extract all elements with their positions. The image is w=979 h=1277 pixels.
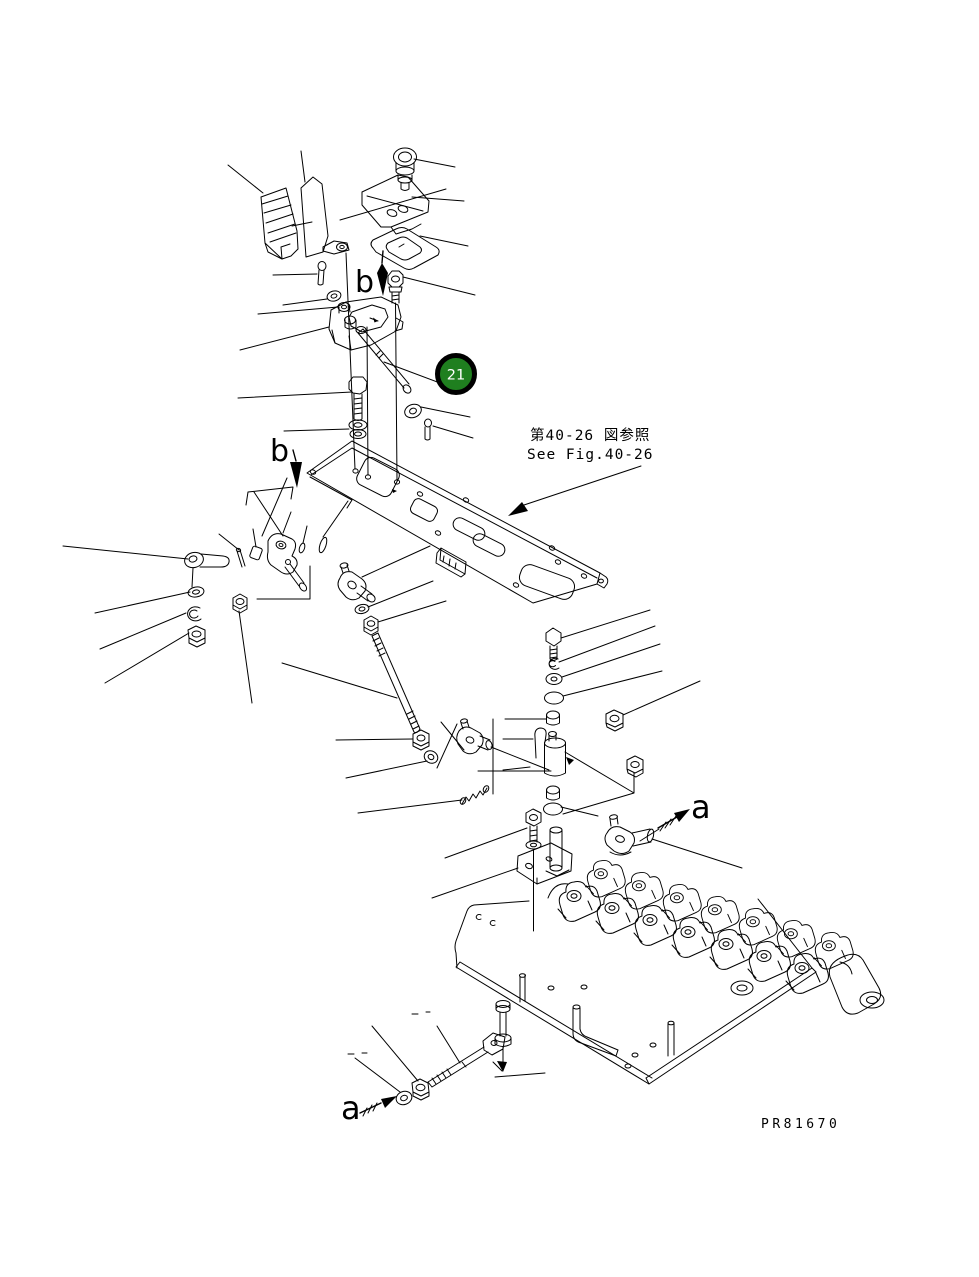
control-valve-body [548, 860, 884, 1014]
hex-bolt-left [238, 377, 367, 421]
view-label-b-mid: b [270, 434, 289, 469]
parts-diagram-page: b 21 第40-26 図参照 See Fig.40-26 [0, 0, 979, 1277]
rod-end-joint [338, 546, 446, 635]
pedal-pad [228, 165, 298, 259]
bolt-top [388, 271, 475, 303]
bellcrank-assembly [219, 501, 348, 703]
drawing-number: PR81670 [761, 1117, 840, 1132]
control-rod [282, 633, 440, 778]
view-label-a-mid: a [691, 788, 711, 826]
thumb-knob [394, 148, 456, 191]
callout-number: 21 [447, 368, 465, 384]
floor-plate [307, 441, 608, 603]
pedal-valve-body [240, 297, 403, 350]
ball-joint-lower [605, 814, 742, 868]
washer-stack [284, 420, 367, 439]
bottom-rod-assembly [348, 1001, 545, 1117]
reference-note-jp: 第40-26 図参照 [530, 426, 650, 444]
cover-plate [362, 175, 464, 234]
callout-balloon-21[interactable]: 21 [438, 356, 475, 393]
dimension-bracket [246, 487, 293, 505]
exploded-parts-drawing: b 21 第40-26 図参照 See Fig.40-26 [0, 0, 979, 1277]
lever-assembly [63, 546, 229, 683]
cotter-pin-small [425, 419, 474, 440]
view-label-a-bottom: a [341, 1089, 361, 1127]
spool-stack [503, 610, 700, 816]
mount-bolt [445, 809, 541, 931]
washer-mid [403, 402, 470, 420]
view-arrow-b-mid [290, 450, 302, 488]
clevis-pin [273, 262, 326, 286]
view-label-b-top: b [355, 265, 374, 300]
cover-pad [371, 228, 468, 270]
small-washer [283, 289, 342, 305]
reference-note-en: See Fig.40-26 [527, 447, 654, 463]
pedal-plate [292, 151, 446, 257]
leader-lines-crank [254, 478, 287, 536]
reference-note: 第40-26 図参照 See Fig.40-26 [508, 426, 654, 516]
spring [358, 785, 490, 813]
ball-joint-mid [437, 718, 551, 794]
hinge-bracket [323, 241, 349, 254]
link-rod-upper [358, 329, 448, 395]
